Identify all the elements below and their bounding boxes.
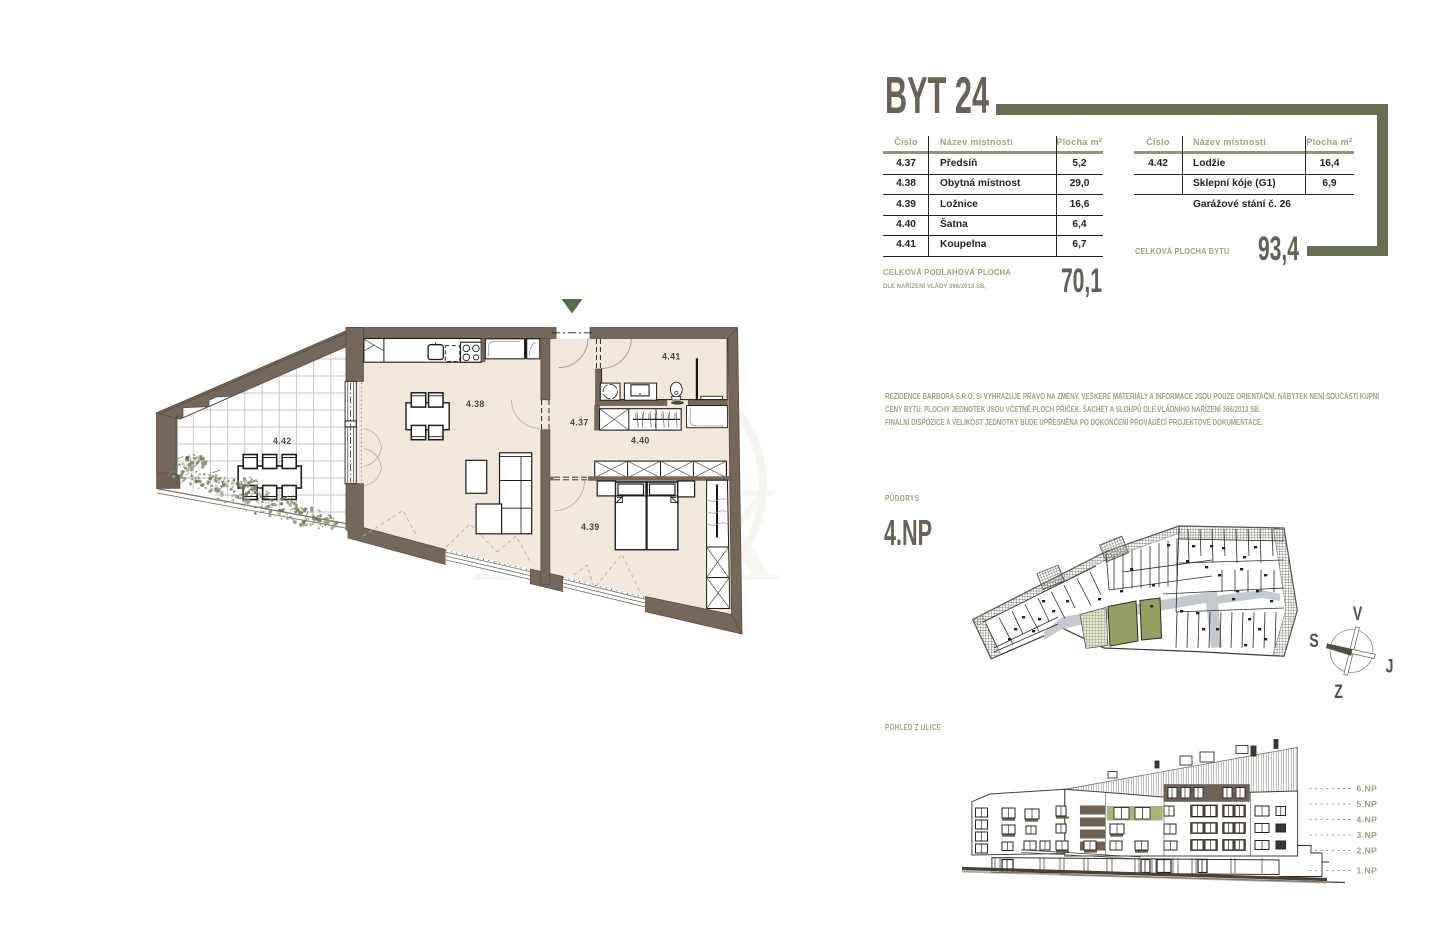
svg-text:4.41: 4.41 — [662, 352, 681, 362]
svg-text:2.NP: 2.NP — [1357, 846, 1378, 856]
svg-text:5.NP: 5.NP — [1357, 799, 1378, 809]
svg-text:4.37: 4.37 — [570, 418, 589, 428]
svg-text:V: V — [1353, 603, 1363, 625]
svg-text:4.38: 4.38 — [466, 399, 485, 409]
svg-text:6.NP: 6.NP — [1357, 784, 1378, 794]
svg-text:1.NP: 1.NP — [1357, 866, 1378, 876]
svg-text:J: J — [1386, 655, 1394, 677]
svg-text:4.39: 4.39 — [581, 522, 600, 532]
svg-text:S: S — [1309, 630, 1318, 652]
svg-text:Z: Z — [1334, 681, 1343, 703]
svg-text:4.42: 4.42 — [273, 436, 292, 446]
svg-text:3.NP: 3.NP — [1357, 830, 1378, 840]
svg-text:4.40: 4.40 — [631, 436, 650, 446]
svg-text:4.NP: 4.NP — [1357, 815, 1378, 825]
